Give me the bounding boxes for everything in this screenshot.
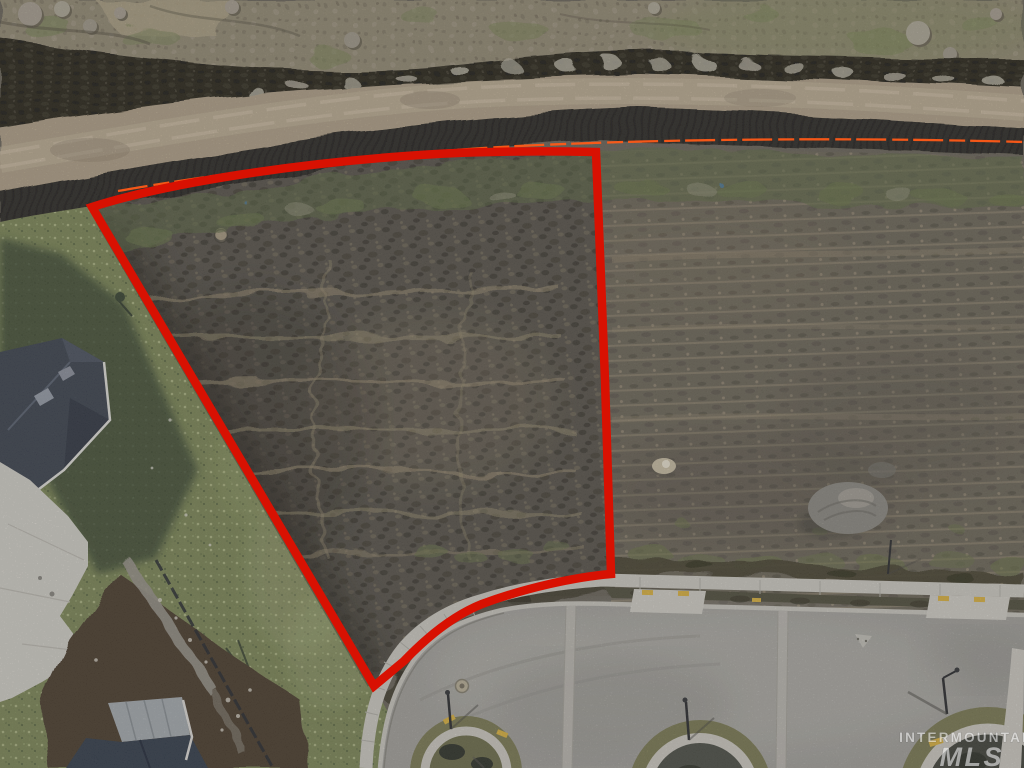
photo-tint (0, 0, 1024, 768)
aerial-photo: INTERMOUNTAIN MLS (0, 0, 1024, 768)
watermark-line2: MLS (940, 742, 1005, 768)
